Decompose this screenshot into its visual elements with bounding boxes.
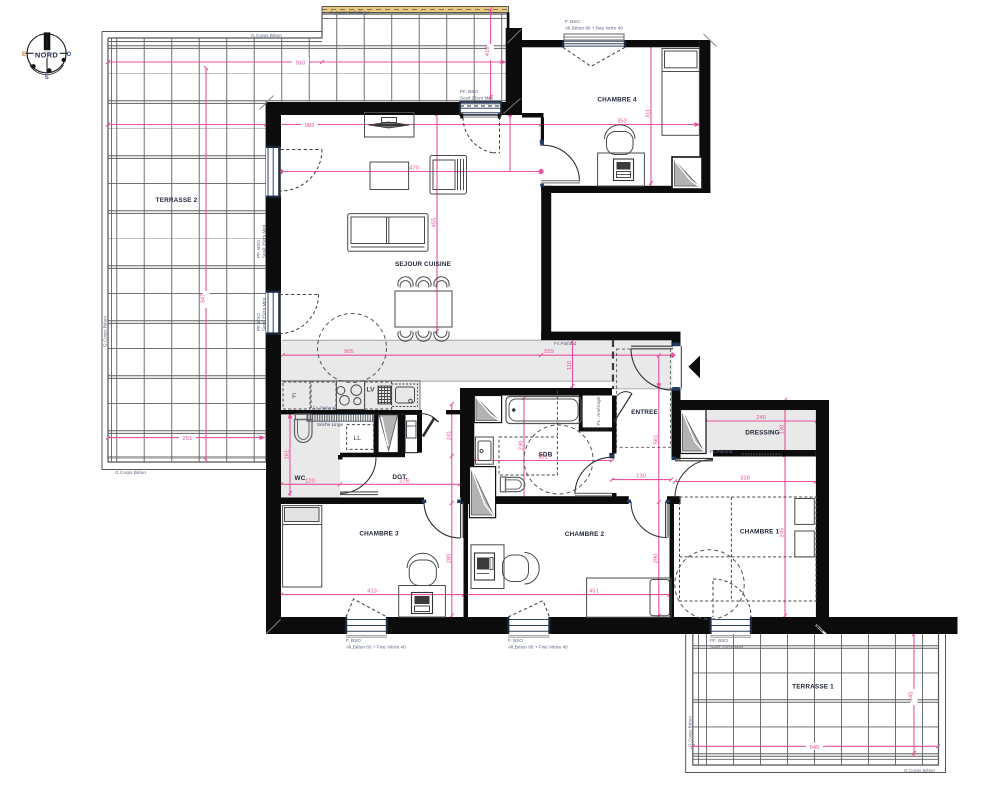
svg-text:O: O [67,52,72,58]
svg-text:Seuil 25cm Mini: Seuil 25cm Mini [262,225,267,258]
svg-text:347: 347 [201,294,207,304]
svg-text:F. BSO: F. BSO [508,638,523,643]
svg-text:241: 241 [446,431,452,441]
svg-text:TERRASSE 2: TERRASSE 2 [156,197,198,204]
svg-text:413: 413 [367,589,377,595]
svg-text:G.Corps Béton: G.Corps Béton [904,768,935,773]
svg-text:S: S [45,75,49,81]
svg-text:G.Corps Béton: G.Corps Béton [688,716,693,747]
svg-text:DGT.: DGT. [392,474,407,481]
svg-text:110: 110 [567,361,573,370]
svg-text:983: 983 [305,123,315,129]
svg-text:G.Corps Béton: G.Corps Béton [251,33,282,38]
svg-text:130: 130 [780,425,786,435]
svg-text:559: 559 [544,349,554,355]
svg-text:561: 561 [653,435,659,445]
svg-text:WC: WC [295,475,306,482]
svg-text:290: 290 [653,554,659,564]
svg-text:311: 311 [646,109,652,118]
svg-text:LV: LV [367,387,376,394]
svg-text:Sèche Linge: Sèche Linge [317,422,343,427]
svg-text:318: 318 [740,476,750,482]
svg-text:G.Corps Béton: G.Corps Béton [115,470,146,475]
svg-text:PF. BSO: PF. BSO [256,313,261,331]
svg-text:ENTREE: ENTREE [631,409,658,416]
svg-text:251: 251 [183,436,193,442]
svg-text:280: 280 [446,554,452,564]
svg-text:455: 455 [432,218,438,228]
svg-text:352: 352 [617,119,627,125]
svg-text:410: 410 [485,47,491,57]
svg-text:E: E [22,52,26,58]
svg-text:130: 130 [636,474,646,480]
svg-text:910: 910 [296,61,306,67]
svg-text:Fx.Plafond: Fx.Plafond [710,449,733,454]
svg-text:CHAMBRE 3: CHAMBRE 3 [359,531,399,538]
svg-text:CHAMBRE 1: CHAMBRE 1 [740,529,780,536]
svg-text:Alt.Béton 80 + Bas Verre 40: Alt.Béton 80 + Bas Verre 40 [565,25,623,30]
svg-text:G.Corps Métallique: G.Corps Métallique [330,10,371,15]
svg-text:SDB: SDB [539,452,553,459]
svg-text:NORD: NORD [35,50,58,59]
svg-text:G.Corps Béton: G.Corps Béton [103,316,108,347]
svg-text:CHAMBRE 2: CHAMBRE 2 [565,531,605,538]
svg-text:SEJOUR CUISINE: SEJOUR CUISINE [395,261,452,268]
svg-text:PF. BSO: PF. BSO [460,89,478,94]
svg-text:F: F [292,394,296,401]
svg-text:PF. BSO: PF. BSO [710,638,728,643]
svg-text:Fx.Plafond: Fx.Plafond [313,406,336,411]
svg-text:161: 161 [285,450,291,460]
svg-text:Seuil 25cm Max: Seuil 25cm Max [460,95,494,100]
svg-text:445: 445 [909,692,915,702]
svg-text:CHAMBRE 4: CHAMBRE 4 [597,97,637,104]
svg-text:451: 451 [589,589,599,595]
svg-text:Alt.Béton 60 + Fixe Vitrée 40: Alt.Béton 60 + Fixe Vitrée 40 [508,644,568,649]
svg-text:230: 230 [519,441,525,451]
svg-text:PL.-Aménagé: PL.-Aménagé [596,396,601,425]
svg-text:PF. BSO: PF. BSO [256,240,261,258]
svg-text:DRESSING: DRESSING [745,430,780,437]
svg-text:Seuil 25cm Max: Seuil 25cm Max [710,644,744,649]
svg-text:Fx.Plafond: Fx.Plafond [554,341,577,346]
svg-text:F. BSO: F. BSO [346,638,361,643]
svg-text:F. BSO: F. BSO [565,19,580,24]
svg-text:905: 905 [344,349,354,355]
svg-text:Alt.Béton 60 + Fixe Vitrée 40: Alt.Béton 60 + Fixe Vitrée 40 [346,644,406,649]
svg-text:245: 245 [756,415,766,421]
svg-text:TERRASSE 1: TERRASSE 1 [792,684,834,691]
svg-text:Seuil 25cm Mini: Seuil 25cm Mini [262,298,267,331]
svg-text:540: 540 [810,745,820,751]
svg-text:LL: LL [354,435,362,442]
svg-text:470: 470 [409,166,419,172]
svg-text:245: 245 [780,528,786,538]
svg-text:120: 120 [305,478,315,484]
